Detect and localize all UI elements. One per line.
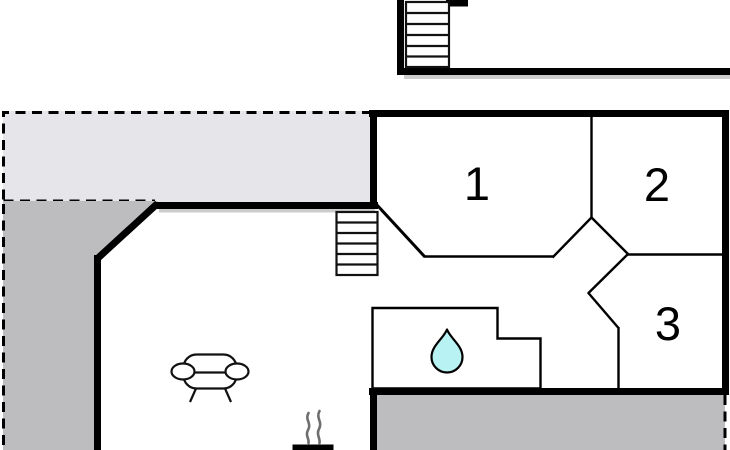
water-drop-icon (432, 330, 463, 373)
fireplace-smoke-right (318, 411, 320, 443)
wall-room1-diagonal-left (377, 205, 426, 258)
west-terrace (3, 201, 158, 450)
sofa-armrest-right (226, 364, 249, 380)
upper-floor-wall-shadow (404, 75, 730, 79)
floor-plan-canvas: 1 2 3 (0, 0, 730, 450)
wall-hall-diagonal-2 (588, 254, 628, 294)
fireplace-smoke-left (307, 413, 309, 443)
floor-plan-page: 1 2 3 (0, 0, 730, 450)
sofa-legs (190, 389, 231, 403)
staircase-upper-icon (406, 2, 449, 67)
room-2-label: 2 (644, 158, 670, 211)
south-terrace (374, 392, 725, 450)
north-terrace-fill (3, 111, 372, 202)
bathroom (373, 308, 541, 389)
sofa-armrest-left (172, 364, 195, 380)
wall-room1-diagonal-right (553, 218, 592, 258)
upper-floor (401, 0, 730, 72)
room-1-label: 1 (464, 157, 490, 210)
south-terrace-fill (374, 392, 725, 450)
west-terrace-fill (3, 201, 158, 450)
room-3-label: 3 (655, 297, 681, 350)
sofa-icon (172, 355, 249, 403)
wall-hall-diagonal-3 (588, 293, 619, 329)
wall-hall-diagonal-1 (592, 218, 629, 255)
north-terrace (3, 111, 372, 202)
staircase-icon (337, 212, 378, 275)
fireplace-hearth-bar (293, 445, 334, 450)
fireplace-icon (293, 411, 334, 450)
